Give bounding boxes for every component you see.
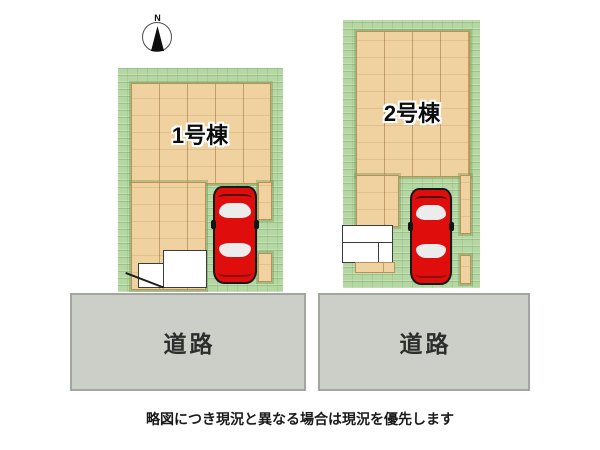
lot-1-entrance-porch (163, 250, 207, 288)
lot-2-entrance-porch (342, 225, 393, 243)
car-rear-window (416, 244, 446, 258)
lot-2-entrance-step-left (342, 242, 379, 263)
lot-1-wall-segment-upper (258, 182, 272, 220)
site-plan-canvas: N 1号棟 2号棟 (0, 0, 600, 450)
car-mirror-right (254, 220, 259, 229)
lot-1-car-icon (213, 186, 257, 284)
lot-1-area: 1号棟 (118, 68, 283, 292)
compass-north-label: N (142, 13, 173, 23)
lot-2-car-icon (410, 188, 452, 285)
car-rear-window (219, 243, 251, 257)
car-body (410, 188, 452, 285)
lot-2-wall-segment-lower (460, 255, 471, 284)
road-1-label: 道路 (161, 325, 216, 359)
road-1: 道路 (70, 293, 306, 391)
car-windshield (219, 203, 251, 218)
road-2-label: 道路 (397, 325, 452, 359)
lot-1-label: 1号棟 (131, 118, 269, 150)
car-windshield (416, 205, 446, 220)
lot-2-area: 2号棟 (343, 20, 480, 288)
lot-2-wall-segment-upper (460, 175, 471, 234)
compass-icon: N (142, 12, 173, 56)
car-mirror-left (211, 220, 216, 229)
disclaimer-caption: 略図につき現況と異なる場合は現況を優先します (0, 409, 600, 429)
lot-2-label: 2号棟 (356, 96, 468, 128)
road-2: 道路 (318, 293, 530, 391)
lot-2-building-wing (356, 175, 399, 227)
lot-2-entrance-step-right (378, 242, 393, 263)
car-body (213, 186, 257, 284)
lot-2-deck-strip (355, 262, 395, 273)
car-mirror-right (449, 222, 454, 231)
car-mirror-left (408, 222, 413, 231)
lot-1-wall-segment-lower (258, 253, 272, 282)
